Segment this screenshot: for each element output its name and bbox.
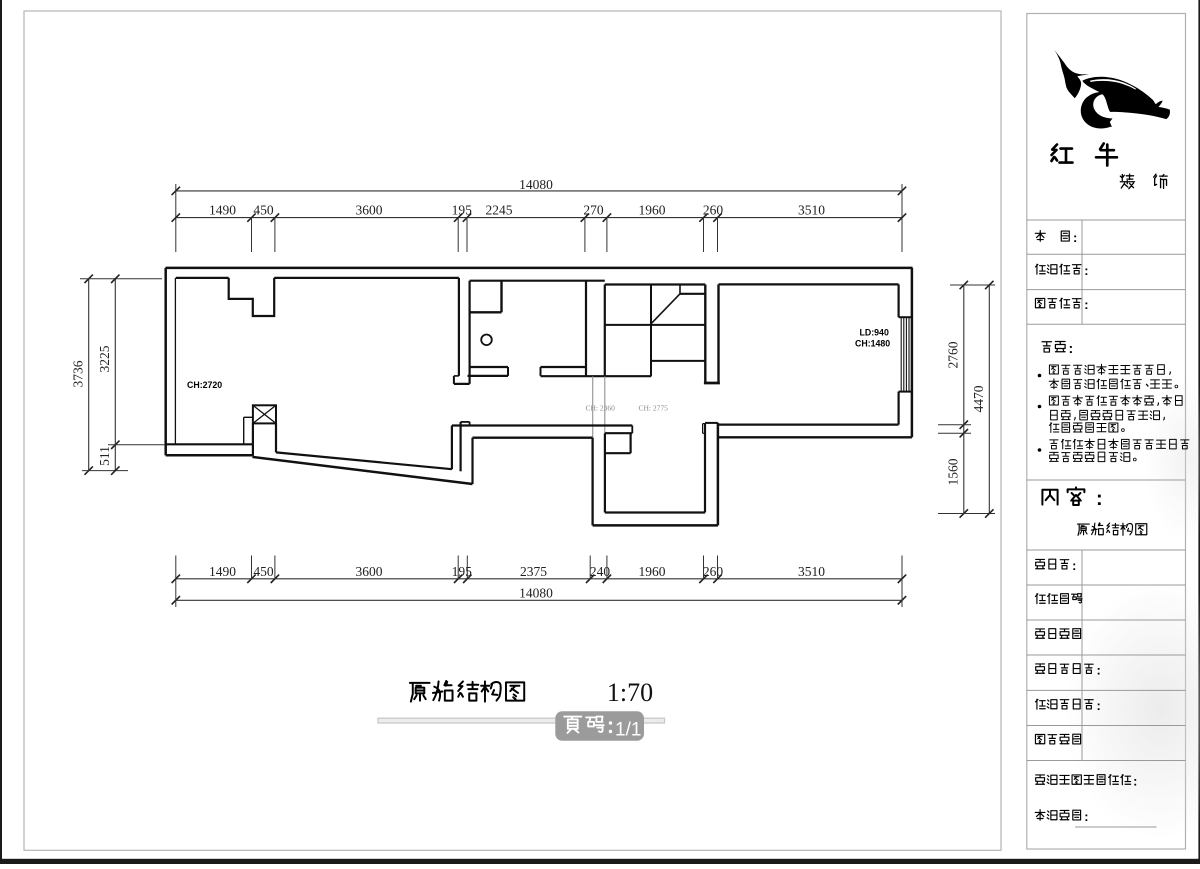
svg-text:3225: 3225 [97, 345, 112, 372]
svg-text:14080: 14080 [519, 177, 553, 192]
svg-text:CH:2720: CH:2720 [187, 380, 222, 390]
svg-text:450: 450 [253, 203, 274, 218]
svg-text:260: 260 [703, 203, 724, 218]
svg-text:3510: 3510 [798, 203, 825, 218]
svg-text::: : [1133, 773, 1137, 788]
svg-text:1/1: 1/1 [615, 720, 641, 741]
svg-text:1960: 1960 [639, 564, 666, 579]
svg-text:3600: 3600 [356, 564, 383, 579]
svg-text:195: 195 [452, 203, 473, 218]
svg-text:1960: 1960 [639, 203, 666, 218]
svg-text:1490: 1490 [209, 203, 236, 218]
svg-text::: : [1097, 698, 1101, 713]
svg-text:270: 270 [583, 203, 604, 218]
svg-text::: : [1096, 488, 1103, 510]
svg-text:14080: 14080 [519, 585, 553, 600]
svg-text:2375: 2375 [520, 564, 547, 579]
svg-text::: : [1084, 263, 1088, 278]
svg-text:195: 195 [452, 564, 473, 579]
svg-text:511: 511 [97, 446, 112, 466]
svg-text:260: 260 [703, 564, 724, 579]
svg-text:1490: 1490 [209, 564, 236, 579]
svg-text::: : [1084, 297, 1088, 312]
svg-text:3736: 3736 [71, 360, 86, 387]
svg-text:2760: 2760 [946, 341, 961, 368]
svg-text:4470: 4470 [971, 385, 986, 412]
svg-text:3600: 3600 [356, 203, 383, 218]
svg-text:450: 450 [253, 564, 274, 579]
svg-text:1560: 1560 [946, 458, 961, 485]
svg-text:240: 240 [590, 564, 611, 579]
svg-text::: : [1069, 341, 1074, 357]
svg-text:CH: 2775: CH: 2775 [639, 404, 669, 413]
svg-text:2245: 2245 [486, 203, 513, 218]
svg-text::: : [1072, 558, 1076, 573]
svg-text::: : [1073, 230, 1077, 245]
svg-text:CH: 2360: CH: 2360 [586, 404, 616, 413]
svg-text:1:70: 1:70 [607, 678, 653, 707]
svg-text:CH:1480: CH:1480 [855, 339, 890, 349]
svg-text:3510: 3510 [798, 564, 825, 579]
svg-text::: : [1097, 662, 1101, 677]
svg-text::: : [1084, 809, 1088, 824]
svg-text:LD:940: LD:940 [860, 328, 889, 338]
